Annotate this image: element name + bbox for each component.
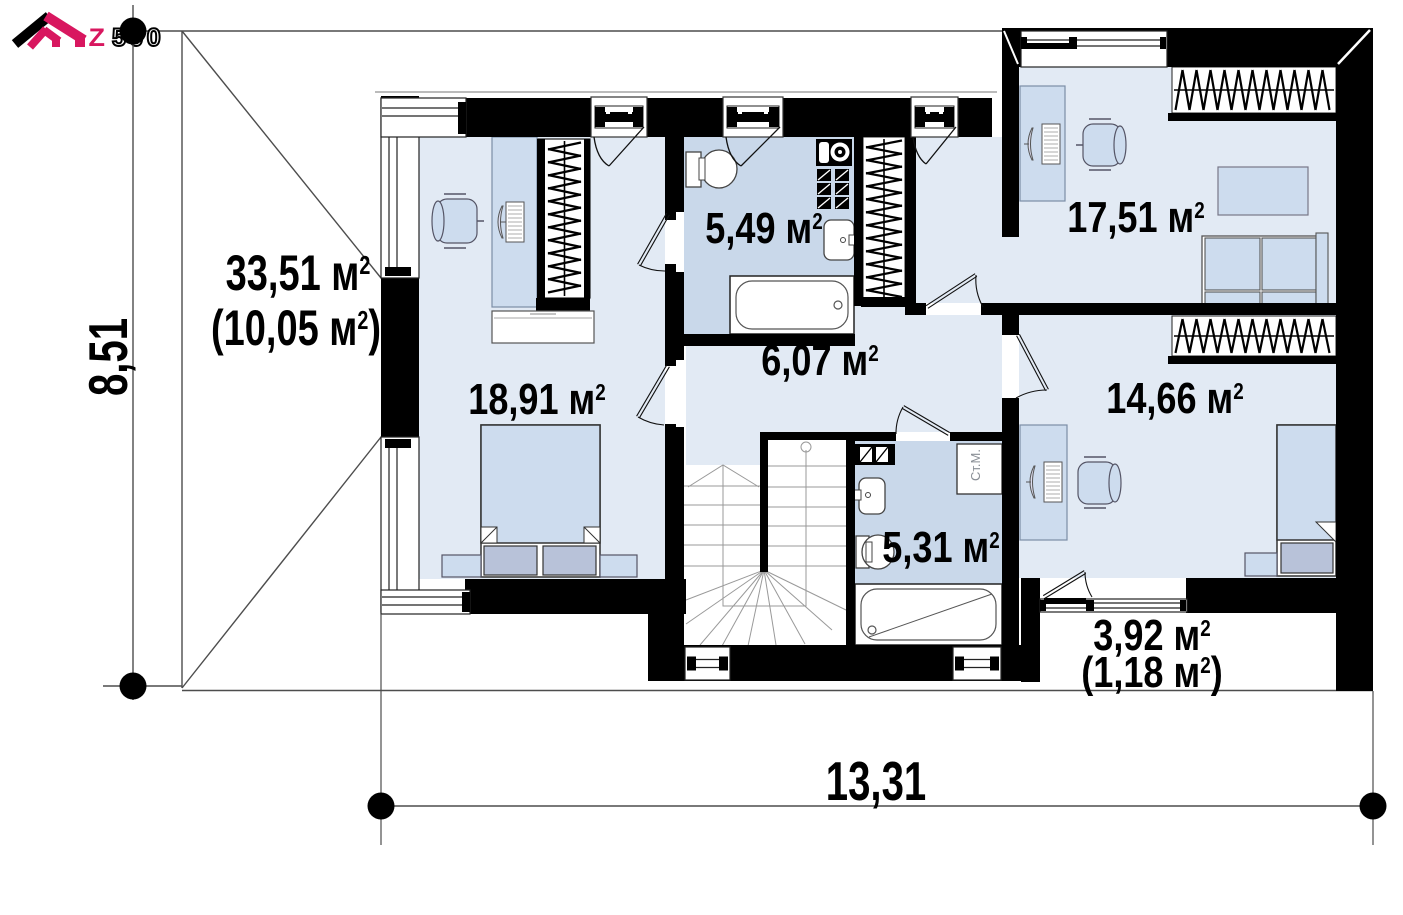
svg-text:6,07 м2: 6,07 м2 (761, 336, 878, 385)
svg-text:5,31 м2: 5,31 м2 (882, 523, 999, 572)
svg-text:17,51 м2: 17,51 м2 (1067, 193, 1204, 242)
svg-text:8,51: 8,51 (78, 318, 140, 396)
svg-text:18,91 м2: 18,91 м2 (468, 375, 605, 424)
svg-text:33,51 м2: 33,51 м2 (226, 246, 371, 301)
svg-text:5,49 м2: 5,49 м2 (705, 204, 822, 253)
svg-text:(10,05 м2): (10,05 м2) (211, 301, 381, 356)
svg-text:14,66 м2: 14,66 м2 (1106, 374, 1243, 423)
svg-text:Z: Z (89, 23, 106, 52)
svg-text:Ст.М.: Ст.М. (968, 449, 983, 481)
svg-text:13,31: 13,31 (826, 751, 926, 813)
